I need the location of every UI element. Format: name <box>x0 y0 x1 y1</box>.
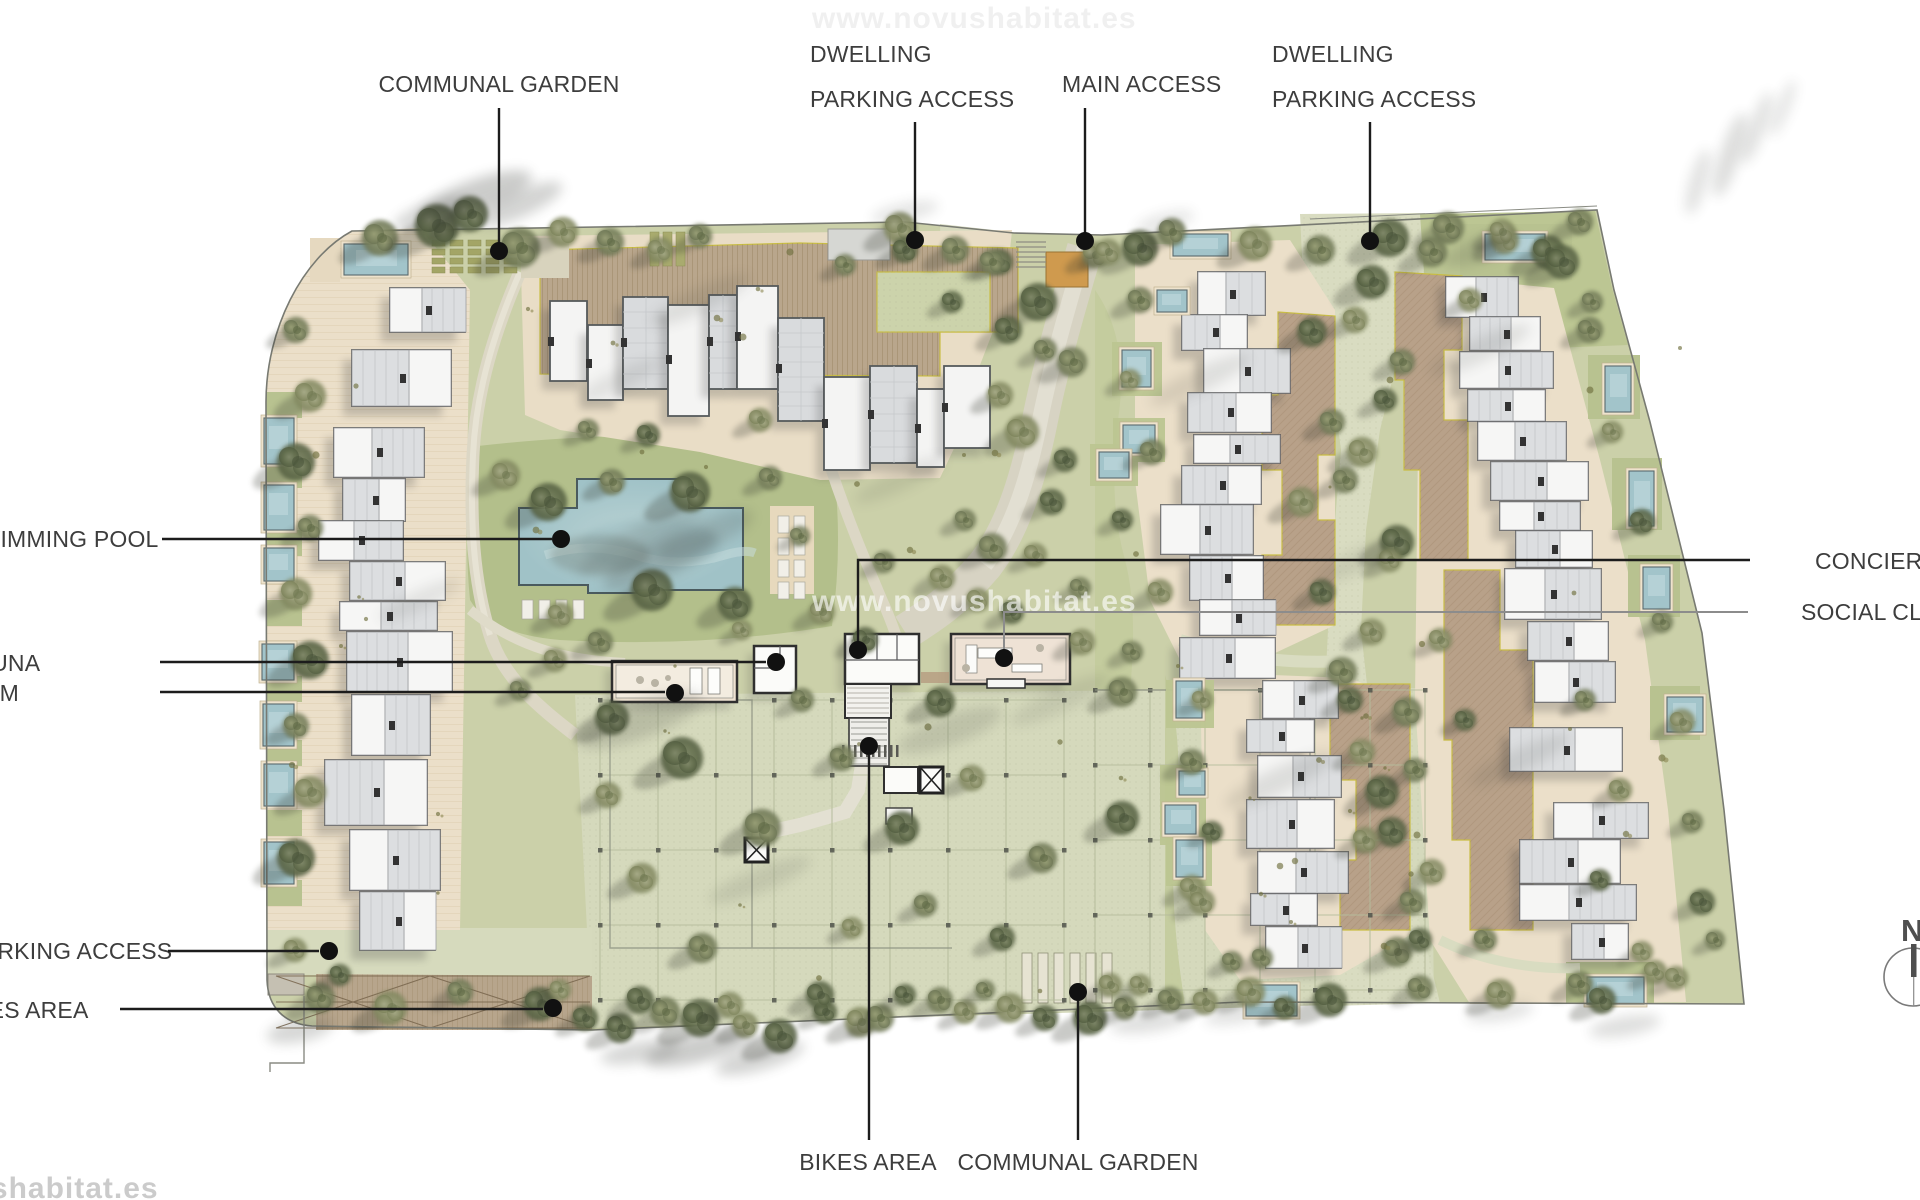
svg-text:www.novushabitat.es: www.novushabitat.es <box>811 2 1137 35</box>
svg-text:PARKING ACCESS: PARKING ACCESS <box>810 86 1014 112</box>
svg-text:www.novushabitat.es: www.novushabitat.es <box>0 1172 159 1200</box>
svg-text:COMMUNAL GARDEN: COMMUNAL GARDEN <box>378 71 619 97</box>
svg-text:SOCIAL CLUB: SOCIAL CLUB <box>1801 599 1920 625</box>
svg-text:SWIMMING POOL: SWIMMING POOL <box>0 526 159 552</box>
svg-text:COMMUNAL GARDEN: COMMUNAL GARDEN <box>957 1149 1198 1175</box>
svg-text:DWELLING: DWELLING <box>1272 41 1394 67</box>
svg-text:SAUNA: SAUNA <box>0 650 41 676</box>
svg-text:CONCIERGE: CONCIERGE <box>1815 548 1920 574</box>
svg-text:GYM: GYM <box>0 680 19 706</box>
svg-text:PARKING ACCESS: PARKING ACCESS <box>1272 86 1476 112</box>
svg-text:PARKING ACCESS: PARKING ACCESS <box>0 938 172 964</box>
svg-text:MAIN ACCESS: MAIN ACCESS <box>1062 71 1221 97</box>
svg-text:BIKES AREA: BIKES AREA <box>799 1149 937 1175</box>
svg-text:N: N <box>1901 913 1920 948</box>
svg-text:BIKES AREA: BIKES AREA <box>0 997 89 1023</box>
svg-text:www.novushabitat.es: www.novushabitat.es <box>811 585 1137 618</box>
svg-text:DWELLING: DWELLING <box>810 41 932 67</box>
